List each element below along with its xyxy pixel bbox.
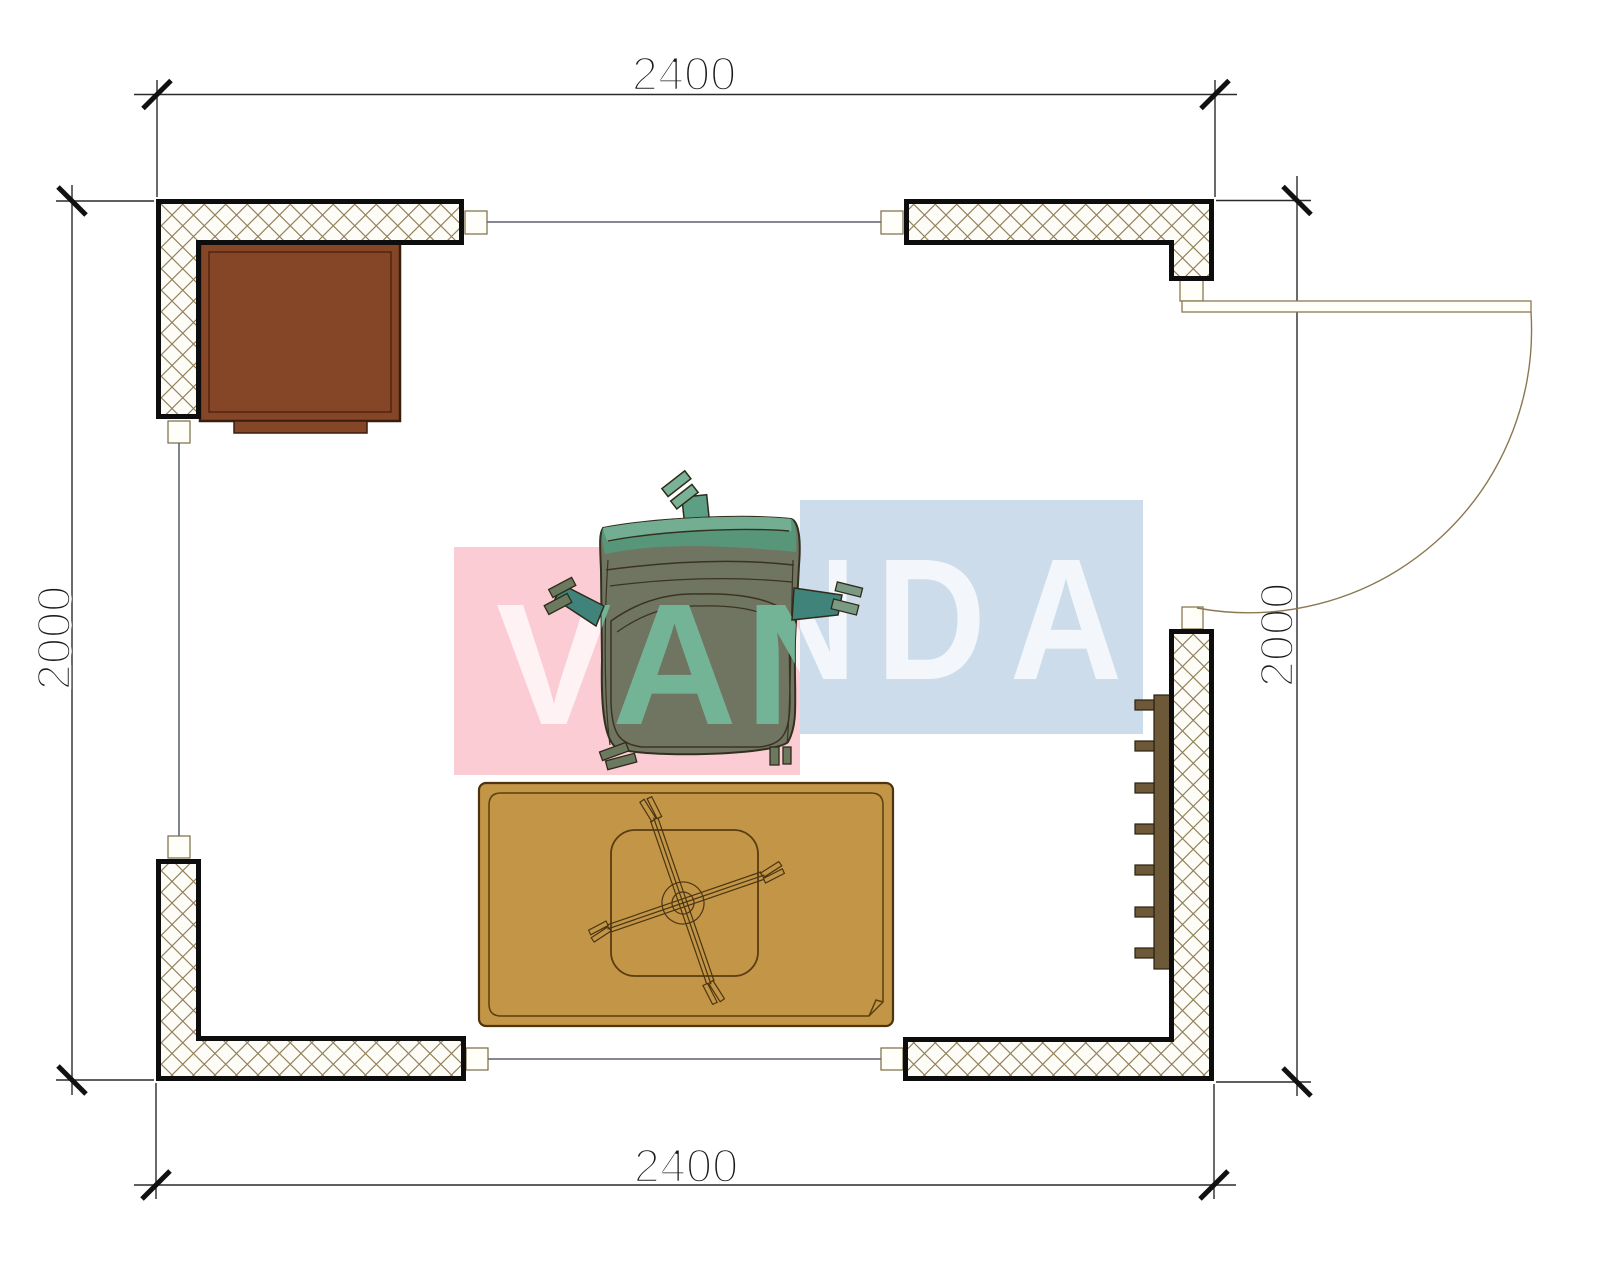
svg-text:A: A <box>612 567 737 761</box>
svg-text:2000: 2000 <box>27 586 80 691</box>
svg-text:2400: 2400 <box>632 47 737 100</box>
svg-text:D: D <box>876 522 986 716</box>
svg-text:2000: 2000 <box>1250 583 1303 688</box>
svg-text:2400: 2400 <box>634 1139 739 1192</box>
svg-text:A: A <box>1010 522 1122 715</box>
